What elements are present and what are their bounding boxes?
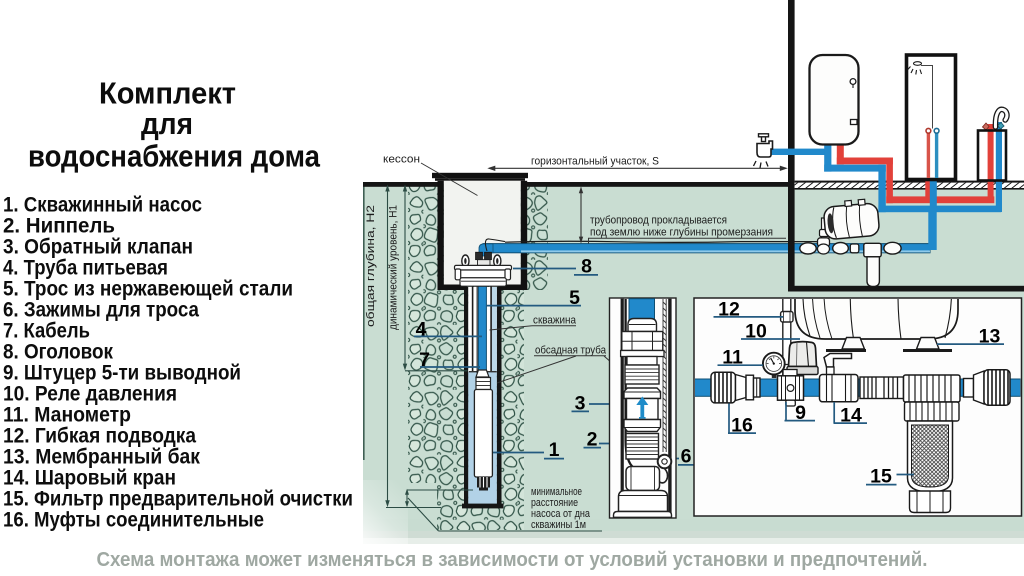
- svg-text:общая глубина, Н2: общая глубина, Н2: [365, 205, 377, 327]
- svg-text:под землю ниже глубины промерз: под землю ниже глубины промерзания: [590, 227, 773, 239]
- svg-text:скважины 1м: скважины 1м: [531, 519, 586, 531]
- svg-text:Схема монтажа может изменяться: Схема монтажа может изменяться в зависим…: [97, 549, 928, 571]
- svg-text:1: 1: [549, 439, 560, 461]
- svg-text:кессон: кессон: [383, 154, 420, 166]
- svg-text:динамический уровень, Н1: динамический уровень, Н1: [388, 205, 400, 330]
- svg-text:для: для: [141, 107, 193, 141]
- svg-text:обсадная труба: обсадная труба: [535, 345, 607, 357]
- svg-text:скважина: скважина: [533, 315, 577, 327]
- svg-text:Комплект: Комплект: [99, 77, 236, 111]
- svg-text:водоснабжения дома: водоснабжения дома: [28, 140, 321, 174]
- svg-text:горизонтальный участок, S: горизонтальный участок, S: [531, 156, 659, 168]
- svg-text:трубопровод прокладывается: трубопровод прокладывается: [590, 215, 727, 227]
- svg-text:16. Муфты соединительные: 16. Муфты соединительные: [3, 508, 264, 532]
